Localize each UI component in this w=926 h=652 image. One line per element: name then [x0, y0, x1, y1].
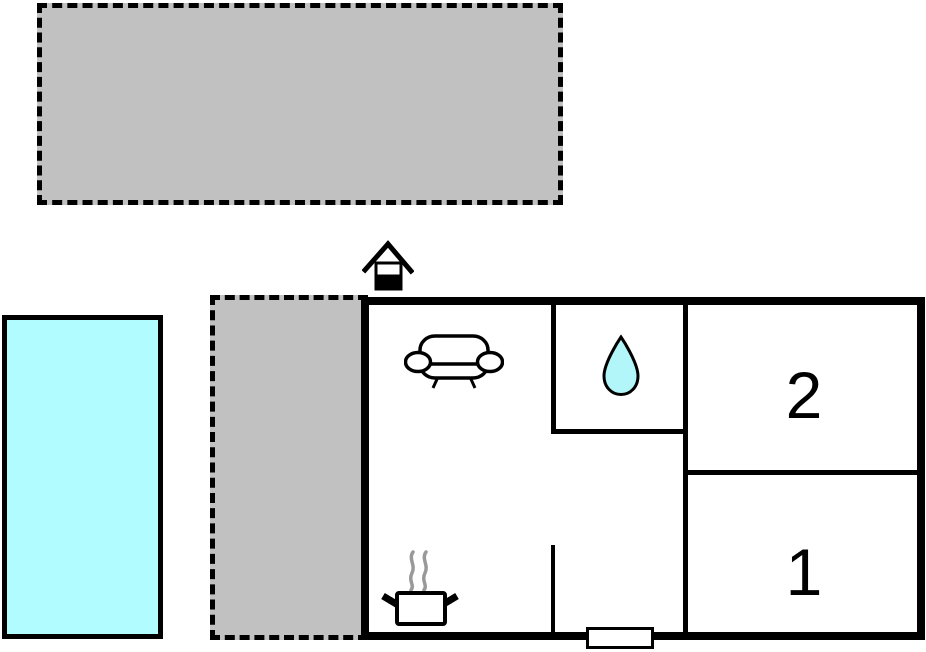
plot-area-side: [210, 295, 368, 640]
entrance-icon: [362, 240, 414, 292]
wall-bathroom-left: [551, 303, 556, 434]
plot-area-top: [37, 3, 563, 205]
sofa-icon: [404, 331, 504, 389]
cooking-pot-icon: [378, 548, 462, 628]
water-drop-icon: [599, 334, 643, 398]
room-label-1: 1: [688, 475, 920, 650]
wall-bathroom-bottom: [551, 429, 688, 434]
wall-hall-stub: [551, 545, 555, 632]
floor-plan-canvas: 2 1: [0, 0, 926, 652]
room-1-number: 1: [786, 539, 823, 605]
swimming-pool: [2, 315, 163, 639]
door-opening-marker: [586, 627, 654, 649]
room-2-number: 2: [786, 362, 823, 428]
room-label-2: 2: [688, 303, 920, 478]
